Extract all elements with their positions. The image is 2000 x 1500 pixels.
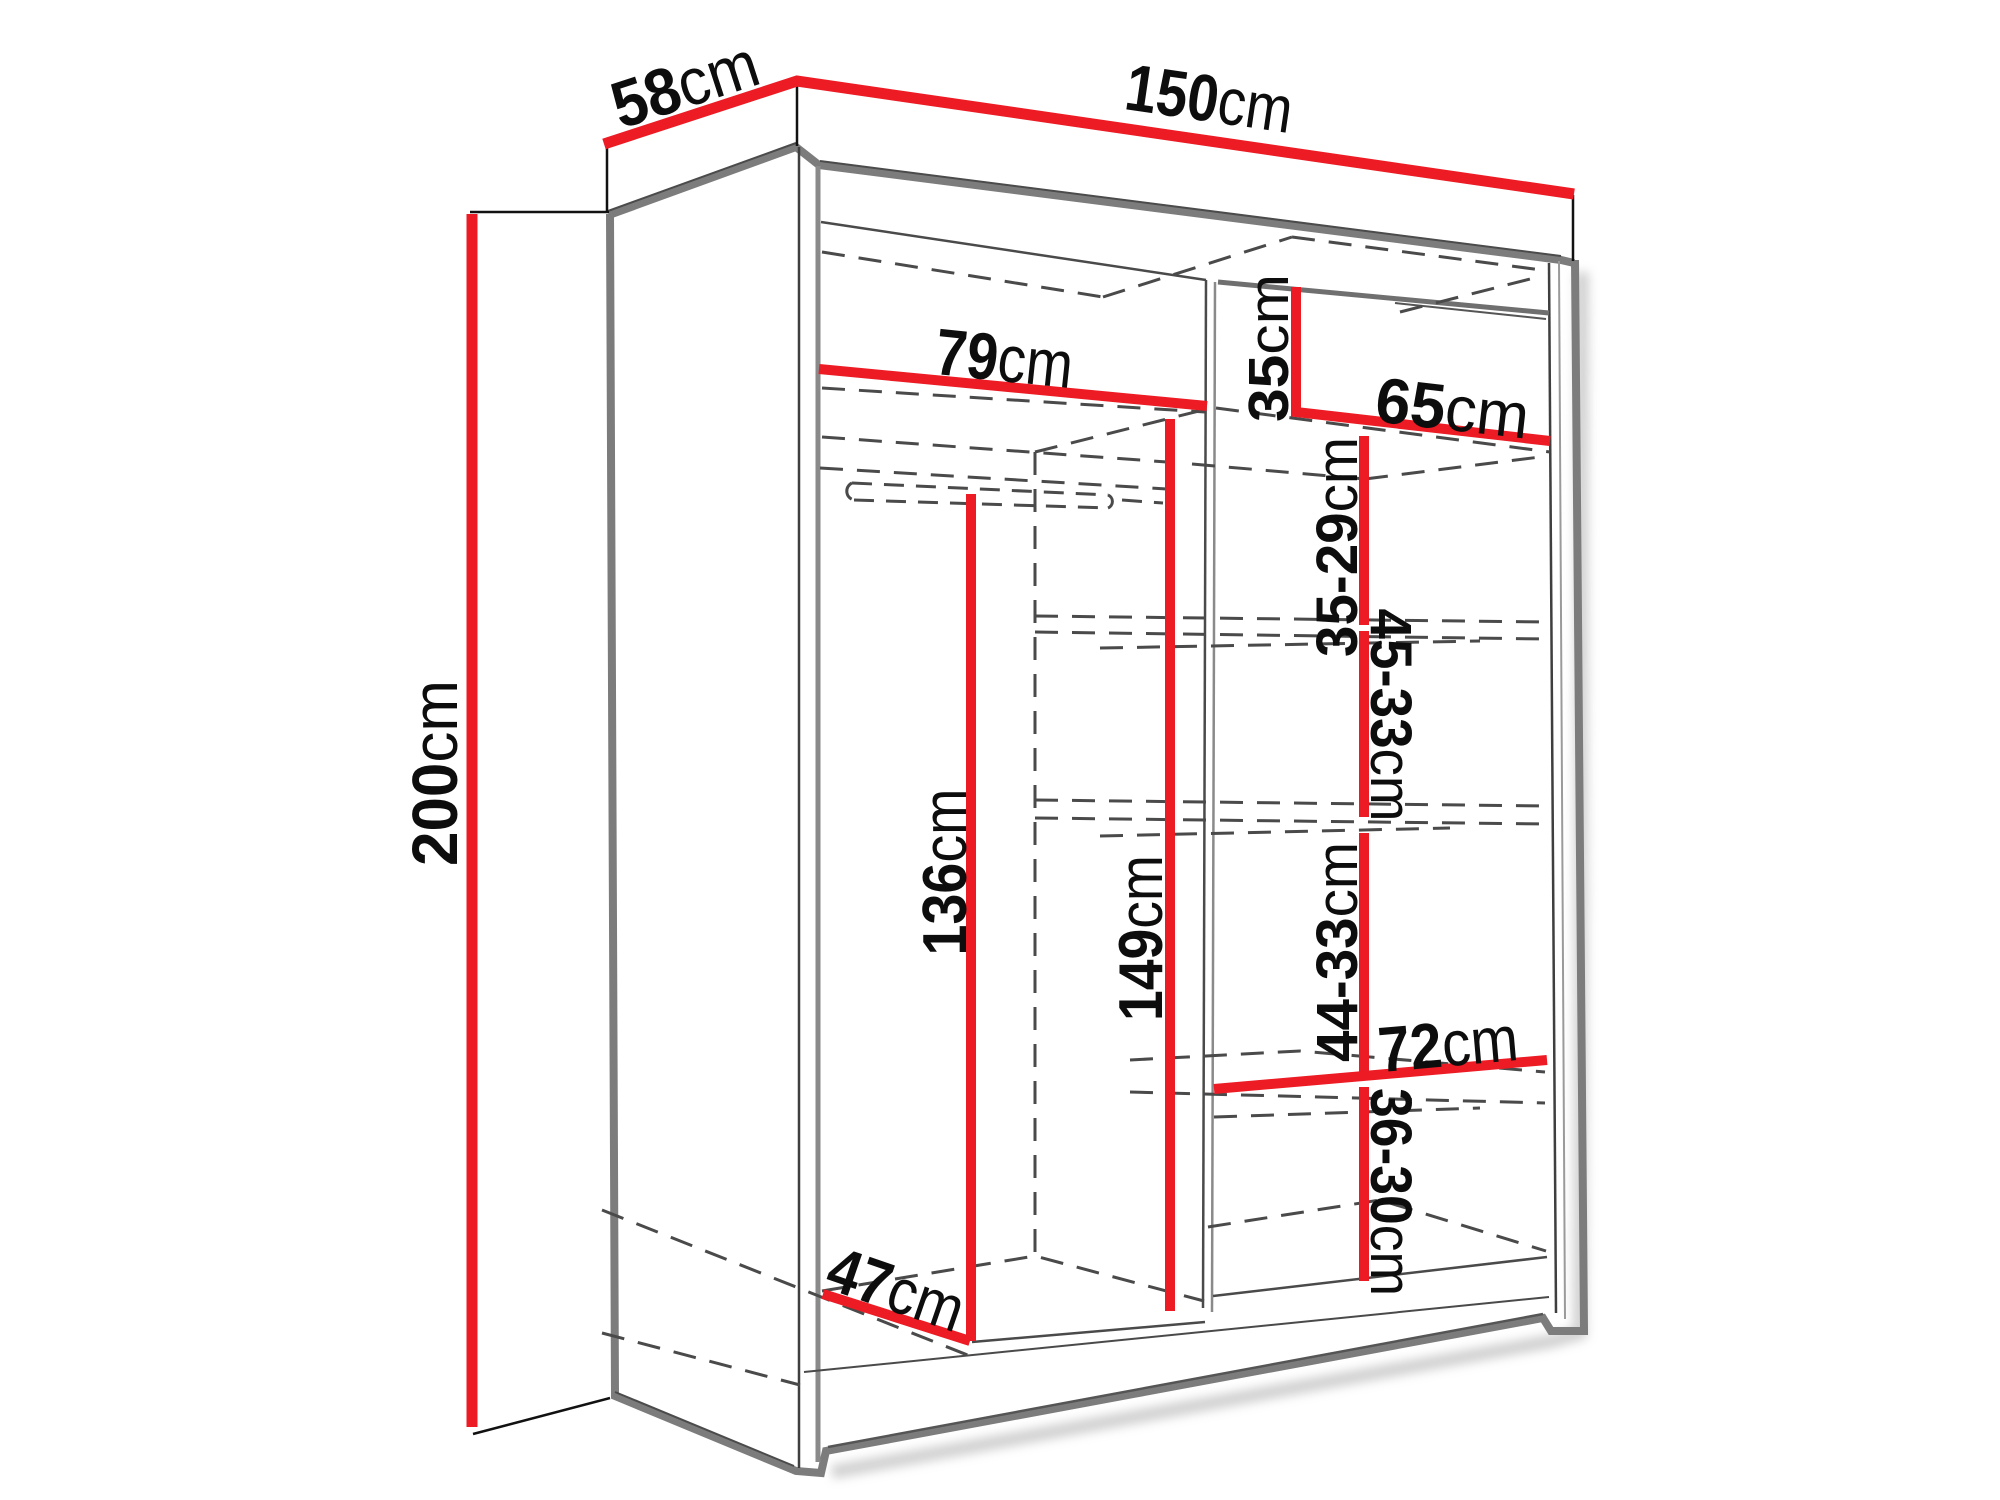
svg-text:79cm: 79cm: [932, 314, 1077, 402]
svg-text:136cm: 136cm: [911, 788, 980, 955]
svg-text:44-33cm: 44-33cm: [1305, 842, 1370, 1062]
svg-text:35cm: 35cm: [1237, 274, 1301, 422]
svg-text:72cm: 72cm: [1375, 1002, 1521, 1086]
svg-text:149cm: 149cm: [1107, 855, 1176, 1021]
svg-text:200cm: 200cm: [399, 680, 471, 866]
svg-text:36-30cm: 36-30cm: [1358, 1088, 1423, 1296]
svg-text:45-33cm: 45-33cm: [1358, 609, 1423, 822]
